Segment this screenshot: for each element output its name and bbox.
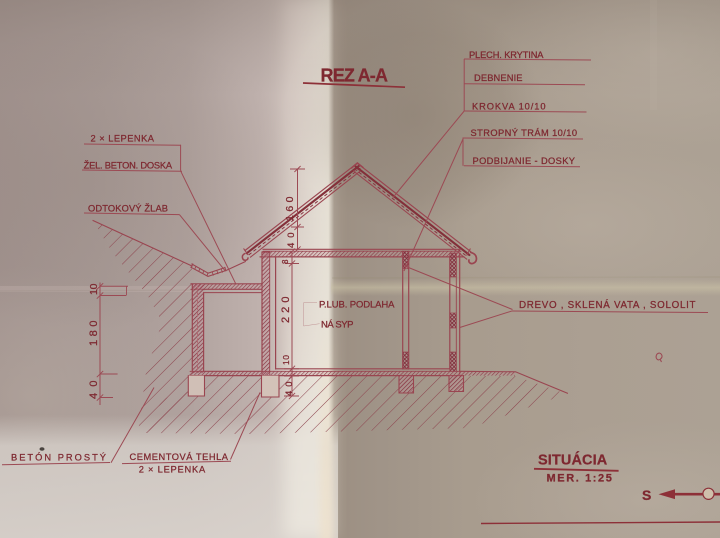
svg-text:SITUÁCIA: SITUÁCIA	[538, 452, 609, 469]
svg-text:ŽEL. BETON. DOSKA: ŽEL. BETON. DOSKA	[84, 160, 173, 170]
svg-text:DREVO , SKLENÁ VATA , SOLOLIT: DREVO , SKLENÁ VATA , SOLOLIT	[519, 300, 696, 311]
svg-text:2 × LEPENKA: 2 × LEPENKA	[139, 464, 206, 474]
svg-text:2 × LEPENKA: 2 × LEPENKA	[91, 134, 155, 144]
svg-text:PODBIJANIE - DOSKY: PODBIJANIE - DOSKY	[473, 156, 576, 166]
svg-text:160: 160	[284, 196, 296, 221]
svg-text:P.LUB. PODLAHA: P.LUB. PODLAHA	[319, 300, 395, 311]
svg-text:180: 180	[88, 320, 100, 346]
svg-text:STROPNÝ TRÁM 10/10: STROPNÝ TRÁM 10/10	[471, 128, 578, 138]
svg-text:10: 10	[88, 283, 100, 295]
svg-text:MER. 1:25: MER. 1:25	[547, 473, 613, 485]
svg-text:8: 8	[281, 259, 290, 264]
svg-text:KROKVA 10/10: KROKVA 10/10	[472, 102, 546, 112]
svg-text:DEBNENIE: DEBNENIE	[474, 73, 523, 83]
svg-text:NÁ SYP: NÁ SYP	[321, 320, 354, 331]
svg-text:REZ A-A: REZ A-A	[321, 66, 391, 86]
svg-text:BETÓN PROSTÝ: BETÓN PROSTÝ	[11, 453, 107, 463]
svg-text:ODTOKOVÝ ŽLAB: ODTOKOVÝ ŽLAB	[88, 203, 169, 213]
svg-text:10: 10	[281, 355, 291, 365]
svg-text:S: S	[642, 487, 652, 503]
svg-text:220: 220	[280, 296, 292, 323]
svg-text:PLECH. KRYTINA: PLECH. KRYTINA	[469, 50, 544, 60]
svg-text:CEMENTOVÁ TEHLA: CEMENTOVÁ TEHLA	[130, 452, 229, 462]
